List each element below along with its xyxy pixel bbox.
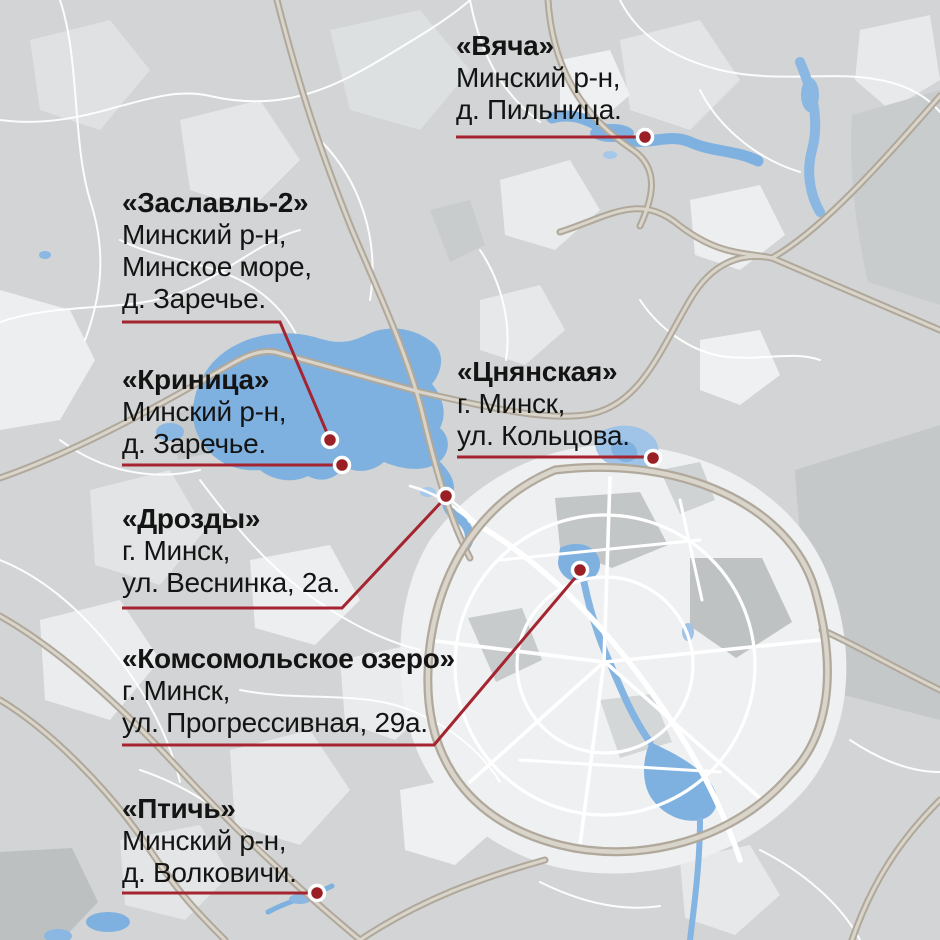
marker-dot-3[interactable]: [646, 451, 661, 466]
marker-dot-0[interactable]: [638, 130, 653, 145]
leader-line-4: [122, 497, 446, 608]
marker-dot-1[interactable]: [323, 433, 338, 448]
marker-dot-5[interactable]: [573, 563, 588, 578]
marker-dot-2[interactable]: [335, 458, 350, 473]
map-canvas[interactable]: «Вяча»Минский р-н,д. Пильница.«Заславль-…: [0, 0, 940, 940]
leader-line-1: [122, 322, 330, 440]
marker-dot-6[interactable]: [310, 886, 325, 901]
marker-dot-4[interactable]: [439, 489, 454, 504]
leader-overlay: [0, 0, 940, 940]
